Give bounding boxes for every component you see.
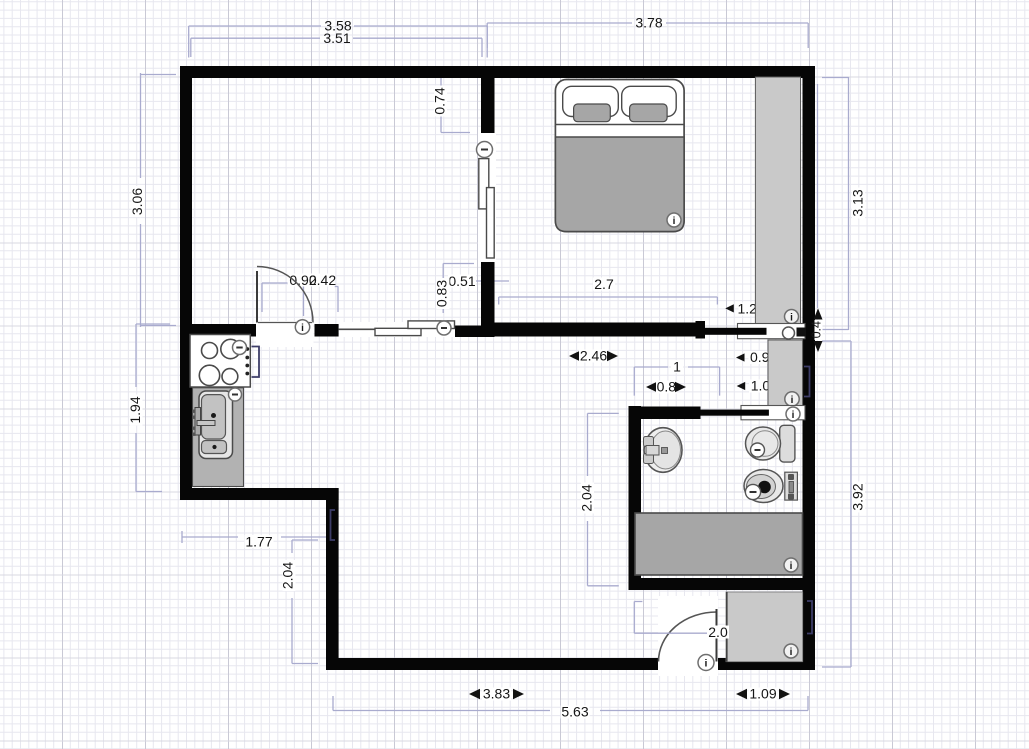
svg-text:2.04: 2.04 xyxy=(280,562,296,589)
svg-text:i: i xyxy=(790,561,793,572)
svg-text:0.8: 0.8 xyxy=(657,379,677,395)
svg-text:1.94: 1.94 xyxy=(127,396,143,423)
svg-text:1.09: 1.09 xyxy=(749,686,776,702)
svg-text:3.78: 3.78 xyxy=(635,15,662,31)
svg-text:0.74: 0.74 xyxy=(432,87,448,114)
svg-text:3.51: 3.51 xyxy=(323,30,350,46)
svg-text:0.42: 0.42 xyxy=(309,272,336,288)
svg-text:1: 1 xyxy=(673,358,681,374)
svg-text:0.4: 0.4 xyxy=(809,321,823,338)
svg-text:i: i xyxy=(792,410,795,421)
svg-text:0.51: 0.51 xyxy=(448,273,475,289)
svg-text:1.77: 1.77 xyxy=(245,533,272,549)
svg-text:i: i xyxy=(705,658,708,670)
svg-text:2.7: 2.7 xyxy=(594,276,614,292)
svg-text:i: i xyxy=(791,395,794,406)
svg-text:1.2: 1.2 xyxy=(738,301,758,317)
svg-text:2.0: 2.0 xyxy=(708,624,728,640)
svg-text:3.13: 3.13 xyxy=(850,189,866,216)
svg-text:2.04: 2.04 xyxy=(579,484,595,511)
svg-text:i: i xyxy=(790,647,793,658)
svg-text:5.63: 5.63 xyxy=(561,704,588,720)
svg-text:2.46: 2.46 xyxy=(580,348,607,364)
svg-text:3.06: 3.06 xyxy=(129,188,145,215)
svg-text:i: i xyxy=(790,312,793,323)
svg-text:1.0: 1.0 xyxy=(751,378,771,394)
svg-text:0.83: 0.83 xyxy=(434,280,450,307)
svg-text:i: i xyxy=(673,216,676,227)
svg-text:3.83: 3.83 xyxy=(483,686,510,702)
svg-text:i: i xyxy=(301,323,304,334)
svg-text:3.92: 3.92 xyxy=(850,483,866,510)
